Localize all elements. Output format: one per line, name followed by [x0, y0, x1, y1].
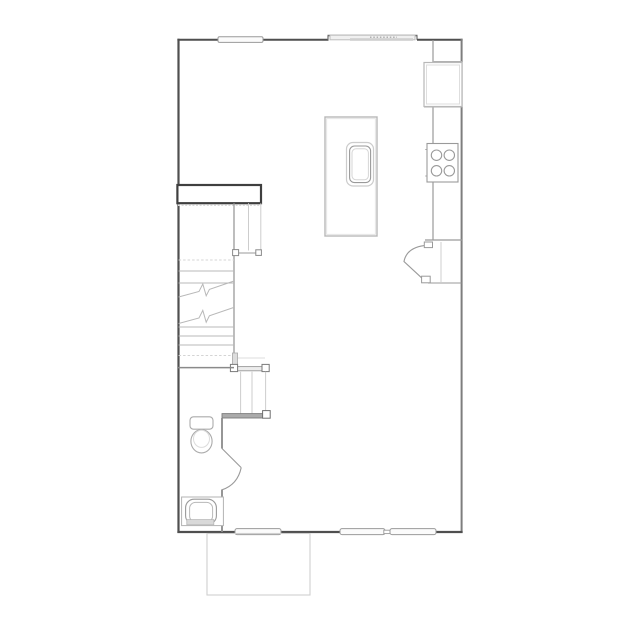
porch-stoop — [207, 534, 310, 596]
cooktop — [425, 144, 458, 183]
refrigerator — [424, 63, 462, 107]
window-top-left — [218, 37, 263, 43]
island-sink — [347, 143, 374, 187]
railing-upper — [230, 364, 269, 413]
exterior-walls — [177, 36, 462, 533]
top-window-band — [330, 35, 415, 41]
floor-plan-canvas — [0, 0, 639, 639]
toilet — [190, 417, 213, 453]
vanity-sink — [182, 497, 224, 526]
bathroom-door — [222, 449, 241, 490]
staircase — [179, 203, 265, 368]
floor-plan — [0, 0, 639, 639]
railing-lower — [222, 411, 270, 419]
stair-chase-wall — [177, 185, 261, 205]
pantry-door — [404, 242, 462, 283]
